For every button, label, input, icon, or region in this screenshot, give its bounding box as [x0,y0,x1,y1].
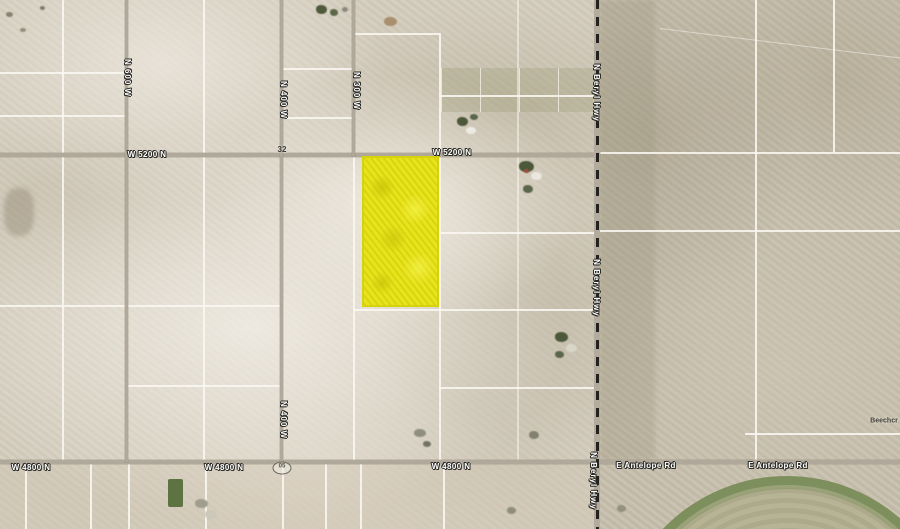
road-label-n-300-w: N 300 W [352,72,360,110]
road-label-e-antelope-rd: E Antelope Rd [748,462,808,470]
parcel-line [355,33,440,35]
road-label-e-antelope-rd: E Antelope Rd [616,462,676,470]
satellite-map[interactable]: W 5200 N W 5200 N 32 N 600 W N 400 W N 4… [0,0,900,529]
road-label-n-beryl-hwy: N Beryl Hwy [589,452,597,510]
building-feature [195,499,208,508]
parcel-line [745,433,900,435]
parcel-line [600,230,900,232]
parcel-line [440,95,598,97]
parcel-line [128,464,130,529]
parcel-line [0,305,283,307]
road-n-400-w [280,0,283,462]
terrain-speck [6,12,13,17]
terrain-speck [20,28,26,32]
parcel-line [439,232,598,234]
milepost-marker: 05 [273,462,292,475]
parcel-line [600,152,900,154]
building-feature [342,7,348,12]
parcel-line [283,117,355,119]
trees-feature [470,114,478,120]
terrain-speck [40,6,45,10]
trees-feature [316,5,327,14]
parcel-line [439,33,441,462]
road-label-w-4800-n: W 4800 N [205,464,244,472]
road-label-n-beryl-hwy: N Beryl Hwy [592,64,600,122]
building-feature [531,172,542,180]
parcel-line [360,464,362,529]
building-feature [384,17,397,26]
trees-feature [555,351,564,358]
building-feature [566,344,577,352]
building-feature [423,441,431,447]
trees-feature [457,117,468,126]
road-label-w-4800-n: W 4800 N [12,464,51,472]
highlighted-parcel[interactable] [362,156,439,307]
parcel-line [443,464,445,529]
green-field-feature [168,479,183,507]
road-label-n-400-w: N 400 W [279,401,287,439]
parcel-line [517,0,519,462]
road-label-n-beryl-hwy: N Beryl Hwy [592,259,600,317]
building-feature [507,507,516,514]
trees-feature [330,9,338,16]
road-label-n-400-w: N 400 W [279,81,287,119]
parcel-line [25,464,27,529]
parcel-line [0,115,127,117]
terrain-dark-patch [4,188,34,236]
building-feature [466,127,476,134]
building-feature [414,429,426,437]
parcel-line [62,0,64,462]
parcel-line [439,387,598,389]
parcel-line [833,0,835,152]
road-w-5200-n [0,153,600,157]
parcel-line [90,464,92,529]
trees-feature [555,332,568,342]
parcel-line [0,72,127,74]
road-label-w-4800-n: W 4800 N [432,463,471,471]
building-feature [205,510,217,519]
parcel-line [127,385,283,387]
parcel-line [283,68,355,70]
road-label-w-5200-n: W 5200 N [433,149,472,157]
building-feature [524,169,529,173]
parcel-line [205,464,207,529]
road-label-w-5200-n: W 5200 N [128,151,167,159]
parcel-line [325,464,327,529]
edge-label-beechcr: Beechcr [870,418,898,425]
building-feature [529,431,539,439]
trees-feature [523,185,533,193]
parcel-line [355,309,598,311]
building-feature [617,505,626,512]
road-label-n-600-w: N 600 W [123,59,131,97]
parcel-line [203,0,205,462]
section-number: 32 [278,146,287,154]
